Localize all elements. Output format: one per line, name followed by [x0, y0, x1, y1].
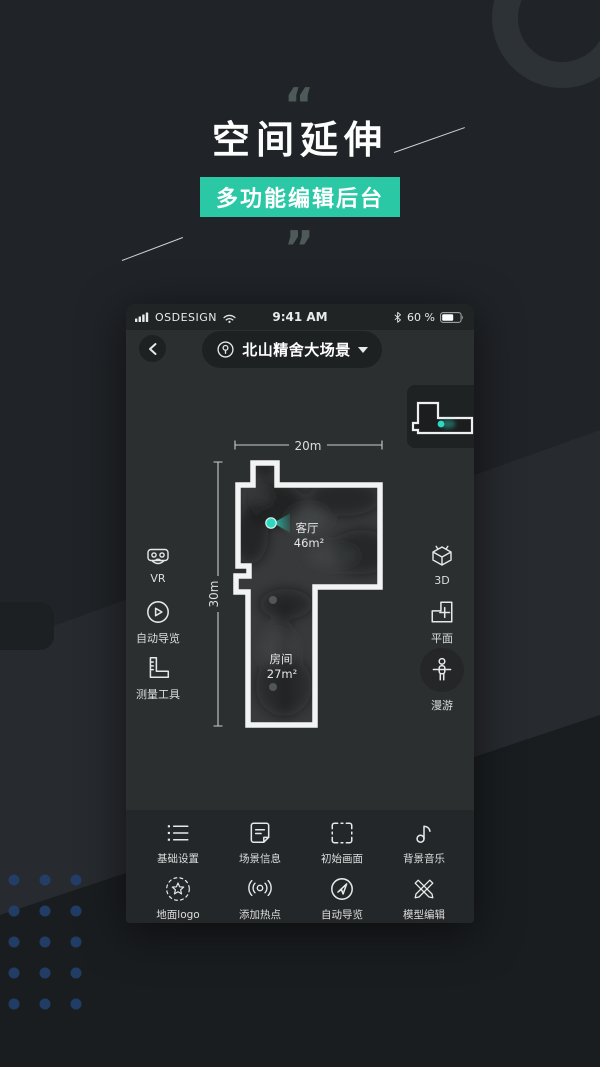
tool-auto-tour[interactable]: 自动导览 — [130, 599, 186, 646]
page-title: 空间延伸 — [0, 121, 600, 159]
vr-goggles-icon — [144, 543, 172, 567]
play-circle-icon — [145, 599, 171, 625]
tool-label: 漫游 — [431, 697, 453, 713]
room-area-living: 46m² — [294, 536, 324, 550]
subtitle-badge: 多功能编辑后台 — [200, 177, 400, 217]
crossed-pens-icon — [411, 876, 437, 902]
person-walk-icon — [429, 656, 455, 684]
toolbar-scene-info[interactable]: 场景信息 — [219, 820, 301, 866]
toolbar-label: 模型编辑 — [403, 907, 445, 922]
cube-3d-icon — [428, 543, 456, 569]
promo-page: “ 空间延伸 多功能编辑后台 ” OSDESIGN 9:41 AM — [0, 0, 600, 1067]
tool-3d[interactable]: 3D — [414, 543, 470, 587]
tool-plan-view[interactable]: 平面 — [414, 599, 470, 646]
music-note-icon — [411, 820, 437, 846]
ruler-square-icon — [145, 655, 171, 681]
quote-close-mark: ” — [0, 225, 600, 271]
toolbar-add-hotspot[interactable]: 添加热点 — [219, 876, 301, 922]
plan-height-label: 30m — [207, 581, 221, 608]
toolbar-basic-settings[interactable]: 基础设置 — [137, 820, 219, 866]
toolbar-label: 场景信息 — [239, 851, 281, 866]
frame-corners-icon — [329, 820, 355, 846]
toolbar-bg-music[interactable]: 背景音乐 — [383, 820, 465, 866]
toolbar-label: 基础设置 — [157, 851, 199, 866]
editor-toolbar: 基础设置 场景信息 初始画面 — [126, 810, 474, 923]
hotspot-waves-icon — [247, 876, 273, 902]
floorplan-icon — [429, 599, 455, 625]
toolbar-auto-tour[interactable]: 自动导览 — [301, 876, 383, 922]
star-dashed-circle-icon — [165, 876, 191, 902]
phone-mockup: OSDESIGN 9:41 AM 60 % — [126, 304, 474, 923]
tool-label: 测量工具 — [136, 686, 180, 702]
toolbar-label: 添加热点 — [239, 907, 281, 922]
room-name-bedroom: 房间 — [270, 652, 293, 666]
navigation-arrow-icon — [329, 876, 355, 902]
tool-label: 自动导览 — [136, 630, 180, 646]
toolbar-label: 初始画面 — [321, 851, 363, 866]
plan-width-label: 20m — [295, 439, 322, 453]
tool-vr[interactable]: VR — [130, 543, 186, 585]
tool-label: 平面 — [431, 630, 453, 646]
tool-roam[interactable]: 漫游 — [414, 648, 470, 713]
active-tool-highlight — [420, 648, 464, 692]
toolbar-label: 自动导览 — [321, 907, 363, 922]
tool-label: VR — [150, 572, 165, 585]
toolbar-initial-view[interactable]: 初始画面 — [301, 820, 383, 866]
room-name-living: 客厅 — [296, 521, 319, 535]
toolbar-ground-logo[interactable]: 地面logo — [137, 876, 219, 922]
note-info-icon — [247, 820, 273, 846]
toolbar-label: 地面logo — [156, 907, 199, 922]
toolbar-model-edit[interactable]: 模型编辑 — [383, 876, 465, 922]
toolbar-label: 背景音乐 — [403, 851, 445, 866]
room-area-bedroom: 27m² — [267, 667, 297, 681]
tool-measure[interactable]: 测量工具 — [130, 655, 186, 702]
tool-label: 3D — [434, 574, 449, 587]
list-settings-icon — [165, 820, 191, 846]
